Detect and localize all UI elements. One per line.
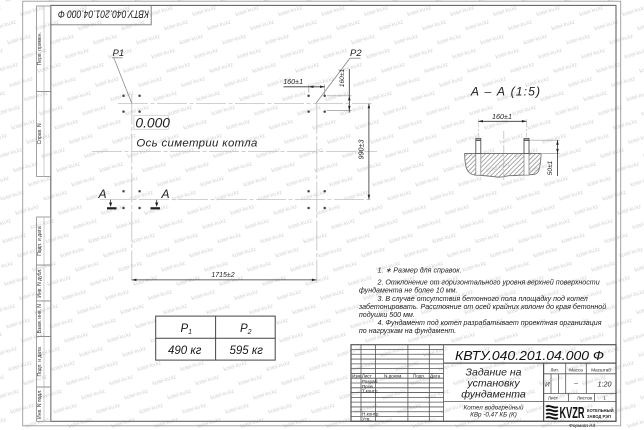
svg-text:50±1: 50±1 bbox=[547, 160, 554, 175]
svg-text:595 кг: 595 кг bbox=[230, 345, 264, 357]
svg-text:Лит.: Лит. bbox=[550, 368, 559, 373]
svg-text:N докум.: N докум. bbox=[384, 373, 403, 378]
svg-text:Ось симетрии котла: Ось симетрии котла bbox=[136, 138, 257, 150]
svg-text:2. Отклонение от горизонтально: 2. Отклонение от горизонтального уровня … bbox=[377, 279, 600, 287]
svg-text:KVZR: KVZR bbox=[560, 405, 585, 422]
svg-text:ЗАВОД РЭП: ЗАВОД РЭП bbox=[587, 414, 611, 420]
svg-text:Взам. инв. N: Взам. инв. N bbox=[37, 304, 43, 334]
svg-text:Инв. N подл.: Инв. N подл. bbox=[37, 389, 43, 418]
svg-text:по нагрузкам на фундамент.: по нагрузкам на фундамент. bbox=[359, 327, 456, 335]
svg-text:Листов: Листов bbox=[577, 396, 592, 401]
svg-text:КВр -0,47 КБ (К): КВр -0,47 КБ (К) bbox=[470, 412, 517, 419]
svg-text:Дата: Дата bbox=[430, 373, 441, 378]
svg-text:КВТУ.040.201.04.000 Ф: КВТУ.040.201.04.000 Ф bbox=[455, 348, 604, 363]
svg-text:0.000: 0.000 bbox=[135, 116, 170, 131]
svg-text:фундамента не более 10 мм.: фундамента не более 10 мм. bbox=[359, 287, 458, 295]
svg-text:А: А bbox=[161, 187, 170, 201]
svg-text:А: А bbox=[98, 187, 107, 201]
svg-text:КВТУ.040.201.04.000 Ф: КВТУ.040.201.04.000 Ф bbox=[58, 8, 149, 20]
svg-text:А – А (1:5): А – А (1:5) bbox=[470, 84, 541, 98]
svg-text:1. ∗ Размер для справок.: 1. ∗ Размер для справок. bbox=[378, 267, 462, 275]
svg-text:160±1: 160±1 bbox=[283, 77, 303, 86]
svg-text:Инв. N дубл.: Инв. N дубл. bbox=[37, 268, 43, 297]
svg-text:подушки 500 мм.: подушки 500 мм. bbox=[359, 311, 415, 319]
svg-text:Котел водогрейный: Котел водогрейный bbox=[464, 404, 524, 412]
svg-text:забетонировать. Расстояние от: забетонировать. Расстояние от осей крайн… bbox=[358, 303, 606, 311]
svg-text:1715±2: 1715±2 bbox=[211, 272, 234, 279]
svg-text:Изм.Лист: Изм.Лист bbox=[352, 373, 373, 378]
svg-text:Справ. N: Справ. N bbox=[37, 123, 43, 144]
svg-text:1:20: 1:20 bbox=[598, 380, 612, 389]
svg-text:490 кг: 490 кг bbox=[168, 345, 202, 357]
svg-text:P2: P2 bbox=[350, 48, 362, 59]
svg-text:990±3: 990±3 bbox=[357, 140, 366, 160]
svg-text:Лист: Лист bbox=[548, 396, 559, 401]
svg-text:Подп. и дата: Подп. и дата bbox=[37, 226, 43, 256]
svg-text:Т.контр.: Т.контр. bbox=[362, 389, 379, 394]
svg-text:Перв. примен.: Перв. примен. bbox=[37, 32, 43, 65]
svg-text:Формат А3: Формат А3 bbox=[569, 423, 596, 429]
svg-text:160±1: 160±1 bbox=[339, 69, 346, 88]
svg-text:Масса: Масса bbox=[569, 368, 583, 373]
svg-text:Подп. и дата: Подп. и дата bbox=[37, 347, 43, 377]
svg-text:Масштаб: Масштаб bbox=[591, 368, 611, 373]
svg-text:P1: P1 bbox=[113, 48, 125, 59]
svg-text:Утв.: Утв. bbox=[362, 416, 371, 421]
svg-text:Подп.: Подп. bbox=[413, 373, 425, 378]
svg-text:160±1: 160±1 bbox=[492, 112, 512, 121]
svg-text:И: И bbox=[545, 382, 550, 389]
svg-text:4. Фундамент под котел разраба: 4. Фундамент под котел разрабатывает про… bbox=[378, 319, 602, 327]
svg-text:фундамента: фундамента bbox=[461, 389, 526, 401]
svg-text:1: 1 bbox=[603, 396, 606, 401]
svg-text:3. В случае отсутствия бетонно: 3. В случае отсутствия бетонного пола пл… bbox=[378, 295, 588, 303]
svg-text:–: – bbox=[574, 380, 578, 387]
